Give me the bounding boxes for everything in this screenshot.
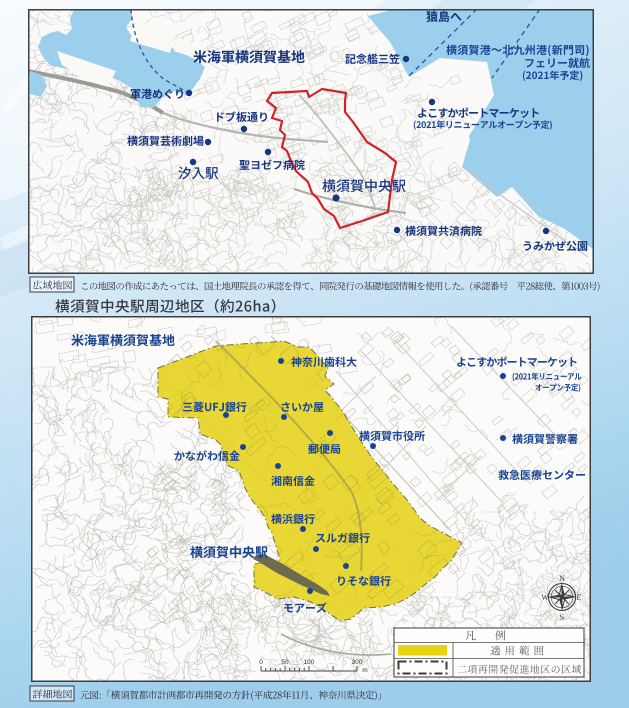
- svg-text:W: W: [541, 593, 549, 602]
- svg-text:50: 50: [281, 659, 289, 666]
- svg-text:S: S: [560, 613, 564, 622]
- svg-text:E: E: [577, 593, 582, 602]
- svg-text:0: 0: [259, 659, 263, 666]
- svg-text:300: 300: [352, 659, 363, 666]
- svg-text:100: 100: [304, 659, 315, 666]
- svg-text:N: N: [559, 574, 565, 583]
- svg-text:m: m: [362, 667, 367, 674]
